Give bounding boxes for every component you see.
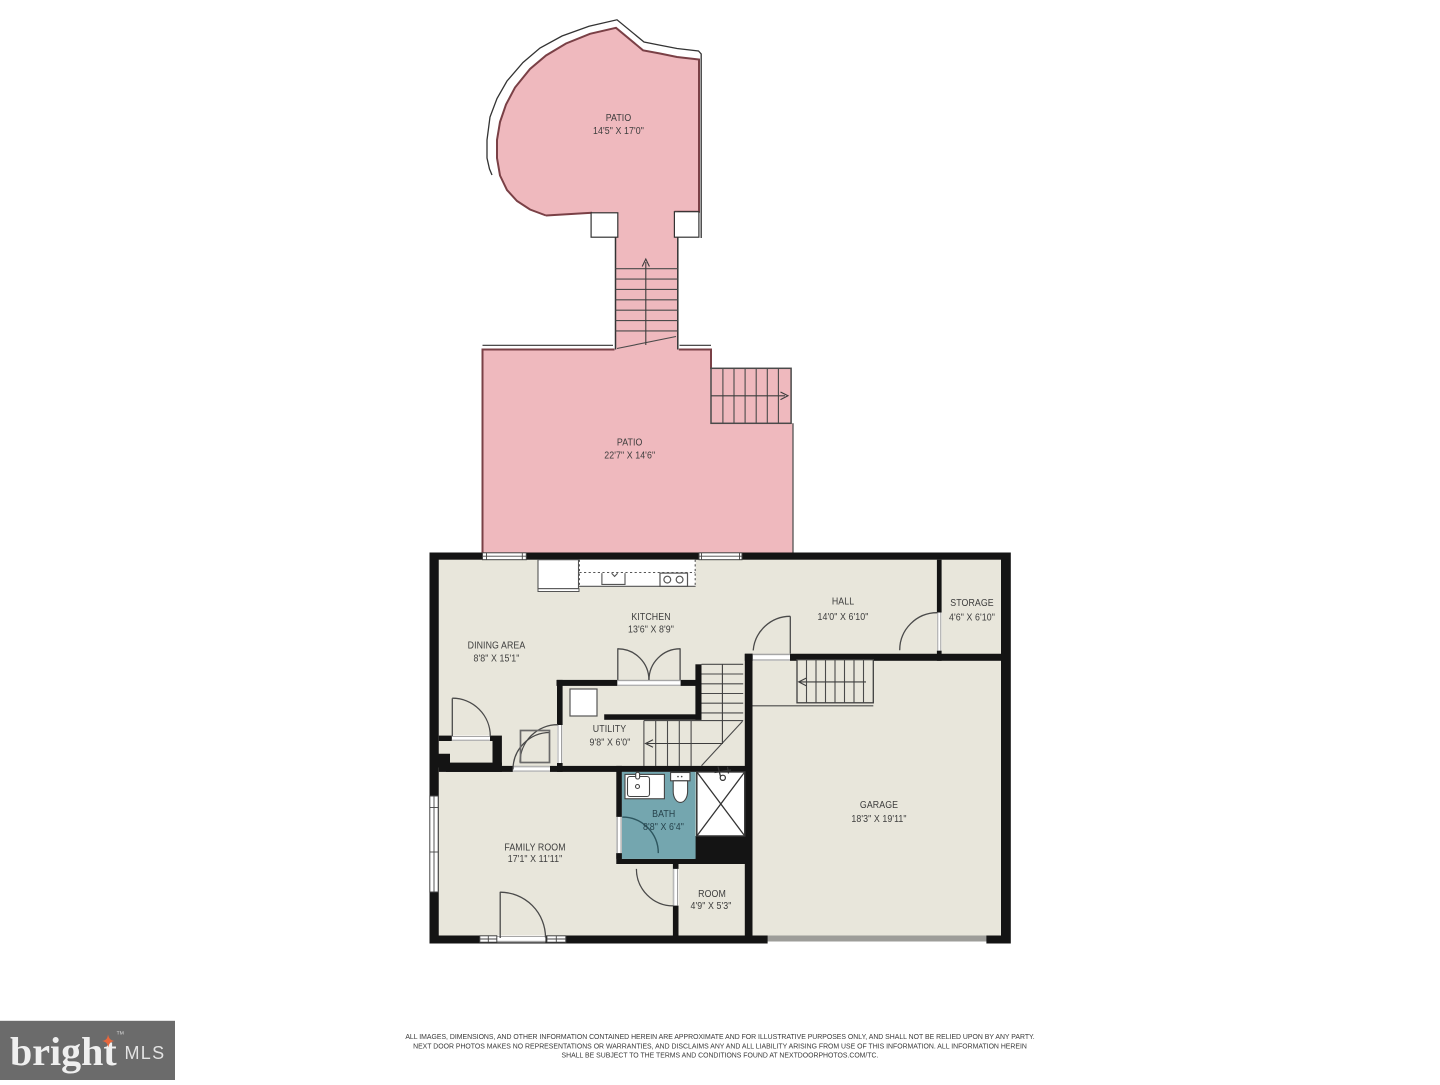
svg-text:PATIO: PATIO — [606, 113, 632, 125]
svg-text:14'5" X 17'0": 14'5" X 17'0" — [593, 125, 644, 137]
svg-text:ALL IMAGES, DIMENSIONS, AND OT: ALL IMAGES, DIMENSIONS, AND OTHER INFORM… — [405, 1034, 1034, 1041]
svg-text:DINING AREA: DINING AREA — [468, 640, 526, 652]
svg-text:17'1" X 11'11": 17'1" X 11'11" — [508, 854, 563, 866]
svg-text:4'6" X 6'10": 4'6" X 6'10" — [949, 612, 995, 624]
svg-text:SHALL BE SUBJECT TO THE TERMS: SHALL BE SUBJECT TO THE TERMS AND CONDIT… — [562, 1053, 879, 1060]
svg-text:22'7" X 14'6": 22'7" X 14'6" — [604, 450, 655, 462]
svg-text:PATIO: PATIO — [617, 437, 643, 449]
svg-text:BATH: BATH — [652, 809, 675, 821]
svg-text:KITCHEN: KITCHEN — [631, 612, 670, 624]
svg-text:MLS: MLS — [125, 1043, 166, 1063]
svg-text:™: ™ — [116, 1029, 125, 1039]
svg-text:14'0" X 6'10": 14'0" X 6'10" — [818, 612, 869, 624]
svg-text:4'9" X 5'3": 4'9" X 5'3" — [691, 901, 732, 913]
svg-text:ROOM: ROOM — [698, 889, 726, 901]
svg-text:bright: bright — [10, 1029, 117, 1074]
svg-text:13'6" X 8'9": 13'6" X 8'9" — [628, 624, 674, 636]
svg-text:9'8" X 6'0": 9'8" X 6'0" — [590, 737, 631, 749]
svg-text:UTILITY: UTILITY — [593, 724, 627, 736]
svg-text:NEXT DOOR PHOTOS MAKES NO REPR: NEXT DOOR PHOTOS MAKES NO REPRESENTATION… — [413, 1043, 1027, 1050]
svg-text:18'3" X 19'11": 18'3" X 19'11" — [851, 814, 907, 826]
svg-text:STORAGE: STORAGE — [950, 598, 994, 610]
svg-text:FAMILY ROOM: FAMILY ROOM — [504, 842, 565, 854]
svg-text:GARAGE: GARAGE — [860, 800, 899, 812]
svg-text:8'8" X 15'1": 8'8" X 15'1" — [474, 653, 520, 665]
svg-text:HALL: HALL — [832, 596, 855, 608]
svg-text:8'8" X 6'4": 8'8" X 6'4" — [643, 822, 684, 834]
